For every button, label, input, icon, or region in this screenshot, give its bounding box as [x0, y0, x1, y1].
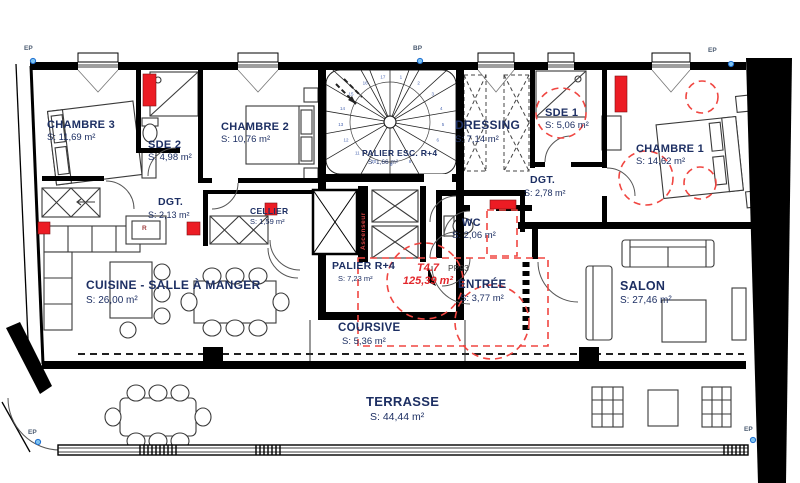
- room-name: WC: [462, 216, 496, 230]
- duct-kitchen: [38, 222, 50, 234]
- room-area: S: 27,46 m²: [620, 294, 672, 307]
- duct-sde-1: [615, 76, 627, 112]
- room-name: TERRASSE: [366, 394, 439, 411]
- window: [652, 53, 690, 92]
- room-area: S: 1,59 m²: [250, 217, 288, 227]
- room-label-palier-esc: PALIER ESC. R+4 S: 1,66 m²: [362, 148, 437, 167]
- room-name: PALIER ESC. R+4: [362, 148, 437, 159]
- room-label-cuisine-salle-a-manger: CUISINE - SALLE À MANGER S: 26,00 m²: [86, 278, 261, 307]
- room-label-coursive: COURSIVE S: 5,36 m²: [338, 321, 400, 348]
- room-name: CHAMBRE 3: [47, 118, 115, 132]
- room-area: S: 5,06 m²: [545, 120, 589, 132]
- floor-plan: 1234567891011121314151617: [0, 0, 800, 483]
- stair-tread-number: 14: [340, 106, 346, 111]
- window: [238, 53, 278, 92]
- duct-cellier: [187, 222, 200, 235]
- room-label-chambre-1: CHAMBRE 1 S: 14,62 m²: [636, 142, 704, 169]
- room-label-chambre-3: CHAMBRE 3 S: 11,69 m²: [47, 118, 115, 145]
- room-name: CUISINE - SALLE À MANGER: [86, 278, 261, 294]
- ep-marker-bottom-left: EP: [28, 429, 37, 436]
- room-area: S: 2,06 m²: [452, 230, 496, 242]
- room-area: S: 44,44 m²: [366, 411, 439, 425]
- room-area: S: 7,23 m²: [332, 274, 395, 284]
- room-area: S: 26,00 m²: [86, 294, 261, 307]
- elevator-label: Ascenseur: [360, 212, 367, 250]
- stair-tread-number: 16: [363, 81, 369, 86]
- wall-west-outer: [16, 64, 29, 362]
- window: [478, 53, 514, 92]
- room-name: ENTRÉE: [458, 278, 506, 293]
- room-name: SDE 1: [545, 106, 589, 120]
- room-area: S: 7,14 m²: [455, 134, 520, 146]
- terrace-dining: [105, 385, 211, 449]
- room-label-salon: SALON S: 27,46 m²: [620, 278, 672, 307]
- ep-marker-top-right: EP: [708, 47, 717, 54]
- room-name: DGT.: [158, 196, 190, 210]
- room-name: CHAMBRE 1: [636, 142, 704, 156]
- room-label-dgt-nord: DGT. S: 2,13 m²: [158, 196, 190, 221]
- room-name: PALIER R+4: [332, 260, 395, 274]
- facade-south: [42, 361, 746, 369]
- unit-area: 125,39 m²: [400, 275, 456, 288]
- stair-tread-number: 13: [338, 122, 344, 127]
- room-area: S: 10,76 m²: [221, 134, 289, 146]
- room-name: CHAMBRE 2: [221, 120, 289, 134]
- wall-west: [31, 66, 43, 364]
- room-name: SALON: [620, 278, 672, 294]
- window: [548, 53, 574, 70]
- terrace-railing: [58, 445, 748, 455]
- room-label-cellier: CELLIER S: 1,59 m²: [250, 206, 288, 227]
- room-label-sde-2: SDE 2 S: 4,98 m²: [148, 138, 192, 165]
- room-label-palier-r4: PALIER R+4 S: 7,23 m²: [332, 260, 395, 283]
- room-label-terrasse: TERRASSE S: 44,44 m²: [366, 394, 439, 425]
- stair-tread-number: 11: [355, 151, 360, 156]
- room-name: COURSIVE: [338, 321, 400, 336]
- unit-label: T4.7 125,39 m²: [400, 262, 456, 287]
- room-area: S: 11,69 m²: [47, 132, 115, 144]
- stair-tread-number: 12: [344, 138, 350, 143]
- wardrobe-chambre-3: [42, 188, 100, 217]
- room-name: DGT.: [530, 174, 566, 188]
- room-label-entree: ENTRÉE S: 3,77 m²: [458, 278, 506, 305]
- room-area: S: 2,13 m²: [148, 210, 190, 222]
- room-label-sde-1: SDE 1 S: 5,06 m²: [545, 106, 589, 133]
- room-area: S: 1,66 m²: [362, 159, 437, 167]
- fridge-label: R: [142, 225, 147, 232]
- room-label-dressing: DRESSING S: 7,14 m²: [455, 118, 520, 146]
- stair-tread-number: 15: [349, 92, 355, 97]
- wall-east-angled: [746, 58, 792, 483]
- room-area: S: 2,78 m²: [524, 188, 566, 200]
- bp-marker-top-center: BP: [413, 45, 422, 52]
- room-area: S: 3,77 m²: [458, 293, 506, 305]
- wall-southwest-diagonal: [6, 322, 52, 394]
- room-label-wc: WC S: 2,06 m²: [462, 216, 496, 243]
- terrace-lounge: [592, 387, 731, 427]
- ep-marker-top-left: EP: [24, 45, 33, 52]
- room-name: DRESSING: [455, 118, 520, 134]
- room-area: S: 14,62 m²: [636, 156, 704, 168]
- wall-north: [30, 62, 746, 70]
- room-label-chambre-2: CHAMBRE 2 S: 10,76 m²: [221, 120, 289, 147]
- room-label-dgt-est: DGT. S: 2,78 m²: [530, 174, 566, 199]
- shower-sde-2: [150, 72, 198, 116]
- room-name: SDE 2: [148, 138, 192, 152]
- unit-code: T4.7: [400, 262, 456, 275]
- room-name: CELLIER: [250, 206, 288, 217]
- room-area: S: 5,36 m²: [338, 336, 400, 348]
- spiral-staircase: 1234567891011121314151617: [302, 34, 478, 210]
- room-area: S: 4,98 m²: [148, 152, 192, 164]
- duct-sde-2: [143, 74, 156, 106]
- duct-wc: [490, 200, 516, 209]
- window: [78, 53, 118, 92]
- ep-marker-bottom-right: EP: [744, 426, 753, 433]
- red-dashed-circle: [686, 81, 718, 113]
- stair-tread-number: 17: [380, 75, 386, 80]
